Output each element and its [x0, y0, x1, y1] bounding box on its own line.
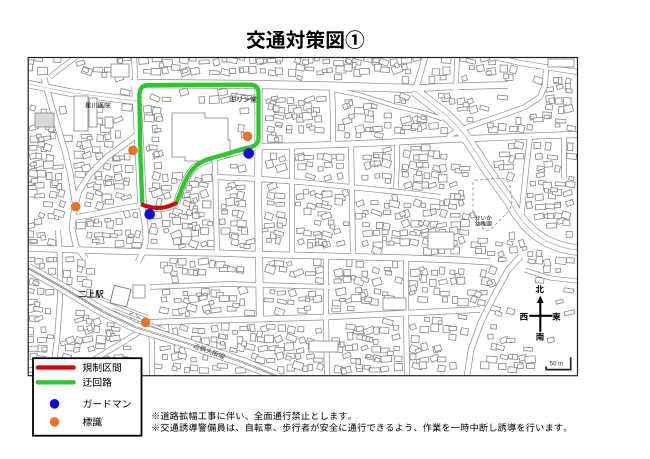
svg-text:50 m: 50 m — [550, 360, 564, 367]
